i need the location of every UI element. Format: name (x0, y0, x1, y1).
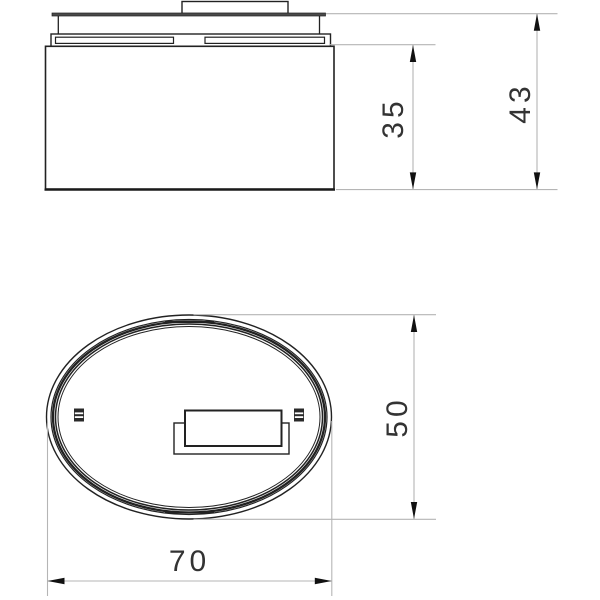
front-view (45, 2, 336, 190)
front-rim-slot-right (205, 37, 325, 43)
arrow-43-up (534, 14, 540, 31)
arrow-70-left (48, 578, 65, 584)
plan-view (47, 315, 332, 519)
arrow-50-up (411, 315, 417, 332)
dim-value-35: 35 (379, 97, 409, 138)
arrow-70-right (315, 578, 332, 584)
plan-recess-inner (185, 411, 282, 447)
front-body (46, 46, 335, 189)
arrow-35-up (410, 45, 416, 62)
dim-value-50: 50 (383, 396, 413, 437)
front-lid-knob (182, 2, 288, 14)
plan-clip-left (74, 409, 84, 422)
front-lid-flange (52, 13, 326, 16)
arrow-35-down (410, 172, 416, 189)
plan-dimensions (48, 315, 437, 596)
arrow-50-down (411, 502, 417, 519)
drawing-canvas: 35 43 50 70 (0, 0, 600, 600)
dim-value-70: 70 (169, 547, 210, 577)
dim-value-43: 43 (506, 82, 536, 123)
front-rim-slot-left (56, 37, 174, 43)
arrow-43-down (534, 172, 540, 189)
plan-clip-right (294, 409, 304, 422)
